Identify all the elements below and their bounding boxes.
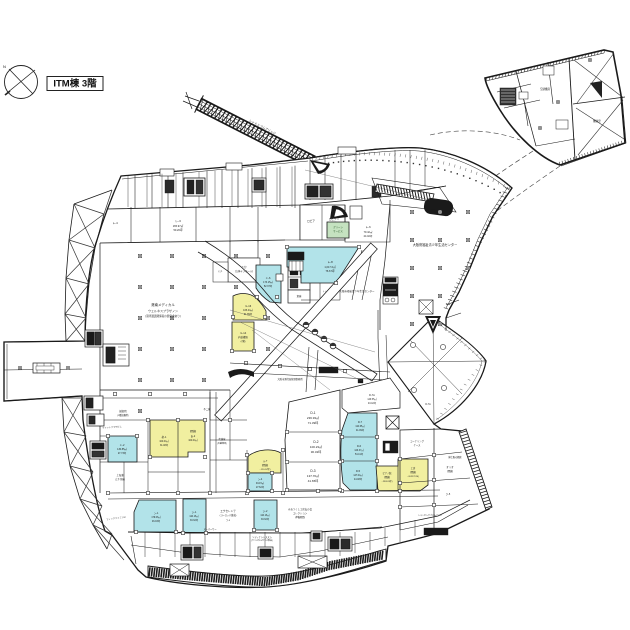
svg-text:ツ-1: ツ-1 <box>192 511 197 514</box>
svg-text:ル-?: ル-? <box>263 460 268 463</box>
svg-text:大阪市福祉青少年生活センター: 大阪市福祉青少年生活センター <box>339 289 375 293</box>
svg-text:グリーン: グリーン <box>333 225 343 229</box>
svg-text:エクセレンテ: エクセレンテ <box>220 509 236 513</box>
svg-text:N: N <box>3 64 6 69</box>
svg-text:41.65坪: 41.65坪 <box>308 478 319 483</box>
svg-text:137.70㎡: 137.70㎡ <box>307 473 319 478</box>
svg-text:D-2: D-2 <box>313 440 318 444</box>
svg-text:ウェルネスプラザノン: ウェルネスプラザノン <box>148 308 178 313</box>
svg-text:ル-14: ル-14 <box>240 331 247 335</box>
svg-text:ン-1: ン-1 <box>154 512 159 515</box>
svg-text:D-7A: D-7A <box>425 403 431 406</box>
svg-text:ク-5: ク-5 <box>446 492 451 496</box>
svg-text:ン-2: ン-2 <box>120 443 125 447</box>
svg-text:レ-8: レ-8 <box>327 260 333 264</box>
svg-text:ロビア: ロビア <box>307 219 315 223</box>
svg-text:D-3: D-3 <box>310 469 315 473</box>
svg-text:鍼灸院: 鍼灸院 <box>119 409 127 413</box>
svg-text:(閉鎖): (閉鎖) <box>262 463 269 467</box>
svg-text:サービス: サービス <box>333 229 343 233</box>
svg-text:100.23㎡: 100.23㎡ <box>310 444 322 449</box>
svg-text:(閉鎖): (閉鎖) <box>190 429 197 433</box>
svg-text:レ-6: レ-6 <box>365 225 371 229</box>
svg-text:71.39坪: 71.39坪 <box>308 420 319 425</box>
svg-text:D-1: D-1 <box>310 411 315 415</box>
svg-text:D-7: D-7 <box>358 421 363 424</box>
svg-text:ン-6: ン-6 <box>266 276 271 280</box>
svg-text:79.42㎡: 79.42㎡ <box>364 230 373 234</box>
svg-text:レ-4: レ-4 <box>112 221 118 225</box>
svg-text:倉庫: 倉庫 <box>297 294 302 298</box>
svg-text:27.73坪: 27.73坪 <box>118 451 127 455</box>
svg-text:24.02坪: 24.02坪 <box>364 234 373 238</box>
svg-text:1,017.0㎡: 1,017.0㎡ <box>324 265 336 269</box>
svg-text:あ-1: あ-1 <box>162 435 167 439</box>
svg-text:173.15㎡: 173.15㎡ <box>263 280 273 284</box>
svg-text:52.37坪: 52.37坪 <box>264 284 273 288</box>
svg-text:機械室: 機械室 <box>593 119 601 123</box>
svg-text:空調機房: 空調機房 <box>540 87 551 91</box>
svg-text:港南メディカル: 港南メディカル <box>151 302 175 307</box>
svg-text:165.97㎡: 165.97㎡ <box>173 224 184 228</box>
svg-text:みおつくし工房友の会: みおつくし工房友の会 <box>288 507 313 511</box>
svg-text:ン-4: ン-4 <box>258 478 263 481</box>
svg-text:ツ-2: ツ-2 <box>263 510 268 513</box>
svg-text:(港湾運送関係者の憩室含あり): (港湾運送関係者の憩室含あり) <box>145 314 181 318</box>
svg-text:コレクション: コレクション <box>293 511 308 515</box>
svg-text:236.93㎡: 236.93㎡ <box>307 415 319 420</box>
svg-text:レ-3: レ-3 <box>175 219 181 223</box>
svg-text:130.85㎡: 130.85㎡ <box>117 447 127 451</box>
svg-text:D-5: D-5 <box>356 470 361 473</box>
svg-text:D-7A: D-7A <box>369 394 375 397</box>
svg-text:105.44㎡: 105.44㎡ <box>243 308 253 312</box>
svg-text:76.67坪: 76.67坪 <box>325 269 334 273</box>
svg-text:上海薬: 上海薬 <box>116 473 124 477</box>
svg-text:30.32坪: 30.32坪 <box>311 449 322 454</box>
svg-text:ミチ: ミチ <box>218 269 223 273</box>
svg-text:オリオ: オリオ <box>446 465 454 469</box>
svg-text:あ-2: あ-2 <box>191 434 196 438</box>
svg-text:ル-16: ル-16 <box>245 304 252 308</box>
svg-text:50.20坪: 50.20坪 <box>173 228 182 232</box>
svg-text:大阪府福祉青少年生活センター: 大阪府福祉青少年生活センター <box>413 242 458 247</box>
svg-text:~2022/7/26): ~2022/7/26) <box>407 476 419 478</box>
svg-text:ITM棟 3階: ITM棟 3階 <box>53 78 97 90</box>
svg-text:D-6: D-6 <box>357 445 362 448</box>
